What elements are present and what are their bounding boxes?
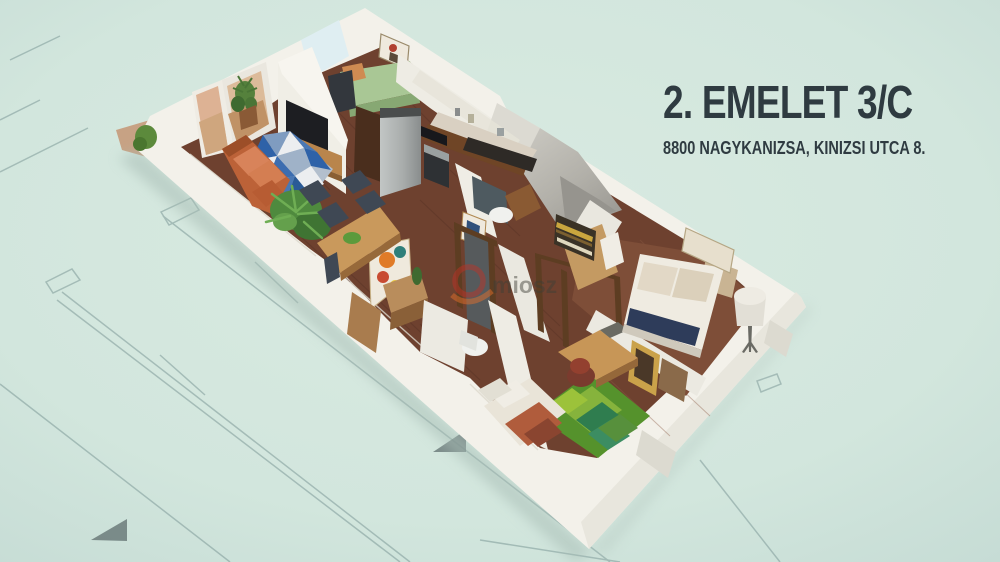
svg-text:2. EMELET 3/C: 2. EMELET 3/C	[663, 76, 913, 128]
svg-text:8800 NAGYKANIZSA, KINIZSI UTCA: 8800 NAGYKANIZSA, KINIZSI UTCA 8.	[663, 137, 925, 158]
svg-text:miosz: miosz	[492, 272, 557, 298]
